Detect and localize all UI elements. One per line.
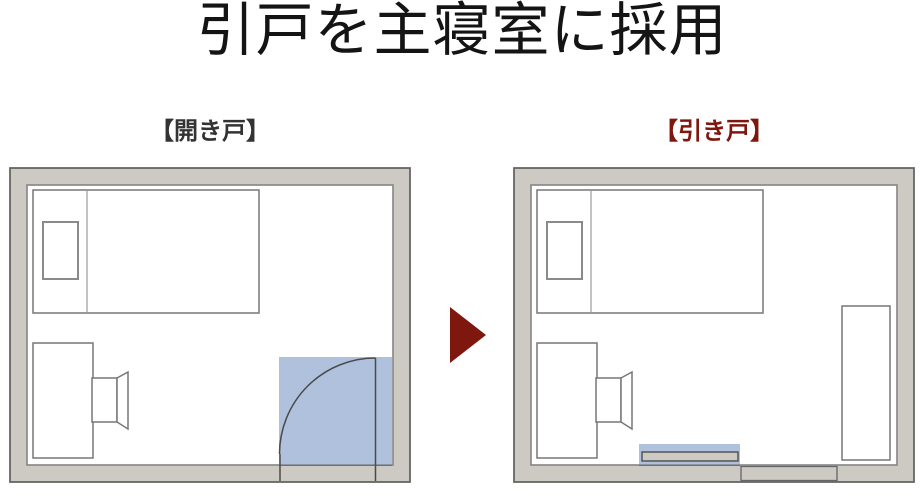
pillow [547,222,582,279]
chair [92,372,128,429]
sliding-door-panel [642,452,738,461]
hinged-door-label: 【開き戸】 [9,115,411,149]
chair [596,372,632,429]
sliding-door-label: 【引き戸】 [513,115,915,149]
sliding-door-floorplan [513,167,915,483]
closet [842,306,890,460]
bed [33,190,259,313]
bed [537,190,763,313]
pillow [43,222,78,279]
arrow-right-icon [450,307,486,363]
desk [537,343,597,458]
doorway-wall-segment [741,467,837,481]
page-title: 引戸を主寝室に採用 [0,0,924,66]
desk [33,343,93,458]
hinged-door-floorplan [9,167,411,483]
